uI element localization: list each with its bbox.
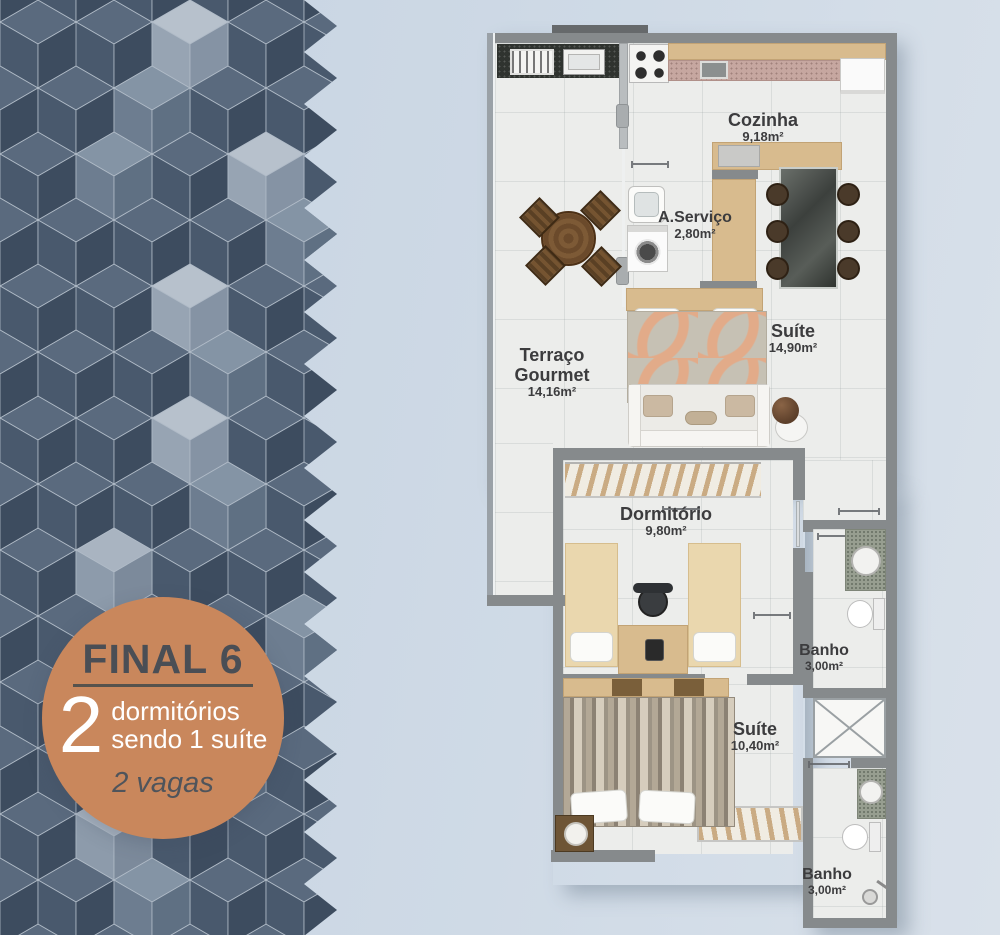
badge-title: FINAL 6	[42, 639, 284, 680]
stove-cooktop-icon	[629, 44, 669, 83]
room-label-terraco: Terraço Gourmet 14,16m²	[487, 345, 617, 400]
wall-right	[886, 33, 897, 928]
wall-bath1-top	[813, 520, 886, 529]
desk-chair	[633, 581, 673, 623]
badge-line1: dormitórios	[111, 697, 267, 725]
floor-terrace	[495, 443, 553, 600]
sofa-lumbar-pillow	[685, 411, 717, 425]
plant-pot-icon	[772, 397, 799, 424]
wall-shaft-bottom-b	[851, 758, 897, 768]
bath1-toilet	[847, 596, 887, 633]
bed-pillow	[570, 632, 613, 662]
wall-terrace-rail	[487, 33, 495, 605]
room-label-suite2: Suíte 10,40m²	[685, 719, 825, 754]
badge-parking: 2 vagas	[42, 767, 284, 800]
room-label-suite1: Suíte 14,90m²	[738, 321, 848, 356]
kitchen-counter-sink	[700, 61, 728, 79]
badge-row: 2 dormitórios sendo 1 suíte	[42, 693, 284, 757]
suite2-wardrobe	[563, 678, 729, 697]
badge-bedroom-text: dormitórios sendo 1 suíte	[111, 697, 267, 753]
shaft-cross-icon	[815, 700, 884, 756]
bed-pillow	[693, 632, 736, 662]
counter-appliance	[718, 145, 760, 167]
dining-chair	[837, 183, 860, 206]
dining-chair	[837, 257, 860, 280]
wall-living-divider	[553, 448, 805, 460]
door-leaf	[796, 501, 800, 547]
wall-bath1-bottom	[803, 688, 897, 698]
real-estate-floorplan-flyer: FINAL 6 2 dormitórios sendo 1 suíte 2 va…	[0, 0, 1000, 935]
room-label-dormitorio: Dormitório 9,80m²	[591, 504, 741, 539]
desk-monitor-icon	[645, 639, 664, 661]
room-label-aservico: A.Serviço 2,80m²	[635, 209, 755, 241]
pergola-deck-strip	[565, 462, 761, 498]
sofa-pillow	[643, 395, 673, 417]
door-marker	[838, 508, 880, 515]
wall-top	[487, 33, 893, 43]
bath2-toilet	[842, 822, 884, 853]
room-label-banho2: Banho 3,00m²	[787, 866, 867, 897]
badge-bedroom-count: 2	[59, 693, 104, 757]
badge-line2: sendo 1 suíte	[111, 725, 267, 753]
dining-chair	[837, 220, 860, 243]
door-marker	[753, 612, 791, 619]
door-marker	[631, 161, 669, 168]
wall-bathcol-left-a	[803, 520, 813, 532]
nightstand	[555, 815, 594, 852]
wall-bedrooms-left	[553, 448, 563, 860]
door-marker	[808, 761, 850, 768]
fridge	[840, 58, 885, 94]
kitchen-sink	[563, 49, 605, 75]
sofa-pillow	[725, 395, 755, 417]
floor-plan: Cozinha 9,18m² A.Serviço 2,80m² Suíte 14…	[485, 25, 905, 935]
unit-badge: FINAL 6 2 dormitórios sendo 1 suíte 2 va…	[42, 597, 284, 839]
wall-bedroom-right-a	[793, 448, 805, 500]
kitchen-window-icon	[510, 49, 554, 75]
bath2-sink	[859, 780, 883, 804]
sofa	[628, 384, 770, 447]
table-lamp-icon	[564, 822, 588, 846]
glass-partition-wall	[619, 43, 628, 149]
sliding-door-handle	[616, 104, 629, 128]
room-label-cozinha: Cozinha 9,18m²	[703, 110, 823, 145]
bed-pillow	[638, 790, 696, 825]
dining-chair	[766, 257, 789, 280]
wall-bedroom-suite-divider-b	[747, 674, 793, 685]
kitchen-counter-granite	[668, 60, 846, 81]
dining-chair	[766, 183, 789, 206]
bath1-sink	[851, 546, 881, 576]
wall-kitchen-stub-a	[712, 170, 758, 179]
room-label-banho1: Banho 3,00m²	[785, 642, 863, 673]
dining-chair	[766, 220, 789, 243]
wall-bottom	[803, 918, 897, 928]
